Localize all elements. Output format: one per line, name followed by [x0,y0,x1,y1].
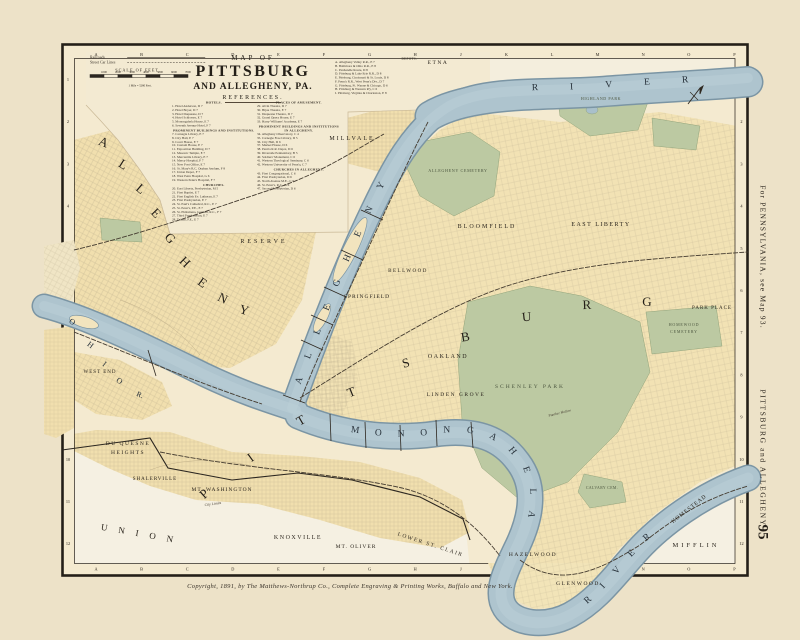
grid-column-letter-top: N [642,52,645,57]
margin-note-bottom: PITTSBURG and ALLEGHENY [759,389,768,526]
grid-row-number-right: 5 [740,246,742,251]
west-park-shape [100,218,142,242]
grid-column-letter-bottom: N [642,567,645,572]
map-label-mifflin: MIFFLIN [672,542,719,549]
scale-segment [174,75,188,78]
map-label-bloomfield: BLOOMFIELD [458,224,517,230]
map-label-oakland: OAKLAND [428,354,468,360]
grid-column-letter-top: G [368,52,371,57]
scale-segment [146,75,160,78]
grid-column-letter-top: O [687,52,690,57]
grid-row-number-left: 10 [66,457,70,462]
scale-note: 1 Mile = 5280 Feet. [129,84,152,88]
grid-row-number-right: 2 [740,119,742,124]
grid-row-number-left: 3 [67,161,69,166]
map-label-bellwood: BELLWOOD [388,269,428,274]
scale-tick-label: 7000 [185,70,191,74]
grid-row-number-right: 10 [739,457,743,462]
map-label-allegheny-cemetery: ALLEGHENY CEMETERY [428,168,487,173]
grid-row-number-left: 2 [67,119,69,124]
map-label-linden-grove: LINDEN GROVE [427,392,486,398]
scale-segment [90,75,104,78]
map-label-reserve: RESERVE [240,239,287,245]
map-label-millvale: MILLVALE [329,136,374,142]
grid-column-letter-top: H [414,52,417,57]
grid-column-letter-bottom: E [277,567,280,572]
map-label-springfield: SPRINGFIELD [344,294,390,300]
scale-segment [132,75,146,78]
grid-row-number-right: 3 [740,161,742,166]
grid-column-letter-bottom: G [368,567,371,572]
scale-segment [104,75,118,78]
map-label-park-place: PARK PLACE [692,306,732,311]
grid-column-letter-top: M [596,52,600,57]
scale-tick-label: 2000 [115,70,121,74]
scale-tick-label: 3000 [129,70,135,74]
grid-column-letter-bottom: B [140,567,143,572]
scale-segment [118,75,132,78]
grid-column-letter-top: E [277,52,280,57]
grid-row-number-left: 11 [66,499,70,504]
scale-segment [160,75,174,78]
map-label-g: G [642,294,651,309]
grid-column-letter-bottom: D [231,567,234,572]
map-label-cemetery: CEMETERY [670,329,698,334]
map-label-etna: ETNA [428,60,449,66]
map-canvas: AABBCCDDEEFFGGHHJJKKLLMMNNOOPP1122334455… [0,0,800,640]
grid-row-number-right: 11 [739,499,743,504]
grid-column-letter-top: B [140,52,143,57]
grid-row-number-right: 12 [739,541,743,546]
map-label-du-quesne: DU QUESNE [106,441,151,447]
grid-row-number-left: 12 [66,541,70,546]
map-label-highland-park: HIGHLAND PARK [581,96,621,101]
grid-column-letter-bottom: O [687,567,690,572]
map-label-mt-oliver: MT. OLIVER [336,544,377,550]
map-label-schenley-park: SCHENLEY PARK [495,384,565,390]
grid-row-number-right: 9 [740,415,742,420]
grid-row-number-right: 8 [740,372,742,377]
map-label-heights: HEIGHTS [111,450,145,456]
grid-column-letter-bottom: H [414,567,417,572]
copyright-line: Copyright, 1891, by The Matthews-Northru… [50,583,650,590]
margin-note-top: For PENNSYLVANIA, see Map 93. [759,185,768,329]
grid-column-letter-bottom: C [186,567,189,572]
scale-tick-label: 4000 [143,70,149,74]
scale-tick-label: 1000 [101,70,107,74]
map-label-hazelwood: HAZELWOOD [509,552,557,558]
map-label-shalerville: SHALERVILLE [133,477,177,482]
scale-tick-label: 6000 [171,70,177,74]
grid-column-letter-top: C [186,52,189,57]
map-label-r: R [582,297,592,312]
map-label-west-end: WEST END [83,370,116,375]
map-label-calvary-cem-: CALVARY CEM. [586,486,618,490]
map-label-east-liberty: EAST LIBERTY [571,222,630,228]
atlas-sheet: AABBCCDDEEFFGGHHJJKKLLMMNNOOPP1122334455… [0,0,800,640]
grid-row-number-left: 1 [67,77,69,82]
grid-column-letter-top: L [551,52,554,57]
scale-tick-label: 5000 [157,70,163,74]
map-label-knoxville: KNOXVILLE [274,535,322,541]
map-label-homewood: HOMEWOOD [669,322,700,327]
grid-column-letter-top: D [231,52,234,57]
page-number: 95 [754,525,771,540]
scale-title: SCALE OF FEET. [115,68,160,73]
